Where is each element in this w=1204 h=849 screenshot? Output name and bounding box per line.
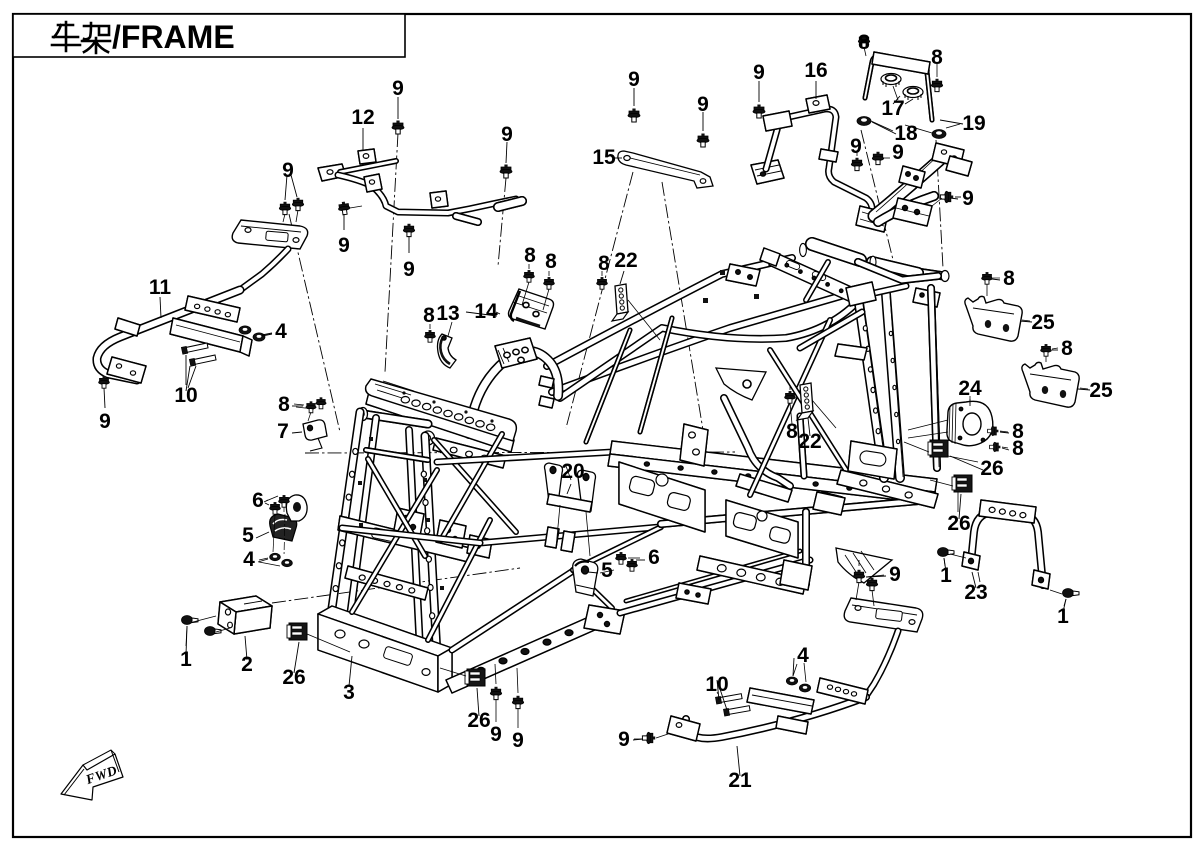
svg-text:17: 17 bbox=[881, 97, 904, 120]
svg-text:8: 8 bbox=[858, 31, 870, 54]
svg-text:8: 8 bbox=[1003, 267, 1015, 290]
svg-text:26: 26 bbox=[980, 457, 1003, 480]
svg-text:9: 9 bbox=[512, 729, 524, 752]
svg-text:8: 8 bbox=[1012, 437, 1024, 460]
svg-text:8: 8 bbox=[423, 304, 435, 327]
svg-text:13: 13 bbox=[436, 302, 459, 325]
svg-text:8: 8 bbox=[278, 393, 290, 416]
svg-text:9: 9 bbox=[403, 258, 415, 281]
svg-text:9: 9 bbox=[99, 410, 111, 433]
svg-text:7: 7 bbox=[277, 420, 289, 443]
svg-text:25: 25 bbox=[1089, 379, 1113, 402]
svg-text:1: 1 bbox=[940, 564, 952, 587]
svg-text:24: 24 bbox=[958, 377, 982, 400]
svg-text:8: 8 bbox=[598, 252, 610, 275]
svg-text:5: 5 bbox=[242, 524, 254, 547]
svg-text:9: 9 bbox=[753, 61, 765, 84]
svg-text:23: 23 bbox=[964, 581, 987, 604]
svg-text:8: 8 bbox=[524, 244, 536, 267]
svg-text:8: 8 bbox=[545, 250, 557, 273]
svg-text:26: 26 bbox=[282, 666, 305, 689]
svg-text:4: 4 bbox=[243, 548, 255, 571]
svg-text:9: 9 bbox=[392, 77, 404, 100]
svg-text:9: 9 bbox=[697, 93, 709, 116]
svg-text:8: 8 bbox=[786, 420, 798, 443]
svg-text:10: 10 bbox=[174, 384, 197, 407]
svg-text:9: 9 bbox=[892, 141, 904, 164]
svg-text:9: 9 bbox=[850, 135, 862, 158]
svg-text:19: 19 bbox=[962, 112, 985, 135]
svg-text:9: 9 bbox=[628, 68, 640, 91]
svg-text:5: 5 bbox=[601, 559, 613, 582]
svg-text:11: 11 bbox=[149, 276, 172, 299]
svg-text:9: 9 bbox=[501, 123, 513, 146]
svg-text:4: 4 bbox=[797, 644, 809, 667]
svg-text:6: 6 bbox=[648, 546, 660, 569]
svg-text:6: 6 bbox=[252, 489, 264, 512]
svg-text:16: 16 bbox=[804, 59, 827, 82]
svg-text:12: 12 bbox=[351, 106, 374, 129]
svg-text:15: 15 bbox=[592, 146, 616, 169]
svg-text:9: 9 bbox=[282, 159, 294, 182]
svg-text:9: 9 bbox=[962, 187, 974, 210]
svg-text:9: 9 bbox=[338, 234, 350, 257]
svg-text:20: 20 bbox=[561, 460, 584, 483]
svg-text:14: 14 bbox=[474, 300, 498, 323]
svg-text:4: 4 bbox=[275, 320, 287, 343]
svg-text:1: 1 bbox=[1057, 605, 1069, 628]
svg-text:9: 9 bbox=[618, 728, 630, 751]
svg-text:25: 25 bbox=[1031, 311, 1055, 334]
svg-text:8: 8 bbox=[931, 46, 943, 69]
svg-text:9: 9 bbox=[889, 563, 901, 586]
svg-text:21: 21 bbox=[728, 769, 752, 792]
svg-text:8: 8 bbox=[1061, 337, 1073, 360]
svg-text:/FRAME: /FRAME bbox=[112, 19, 235, 55]
svg-text:22: 22 bbox=[614, 249, 637, 272]
svg-text:9: 9 bbox=[490, 723, 502, 746]
